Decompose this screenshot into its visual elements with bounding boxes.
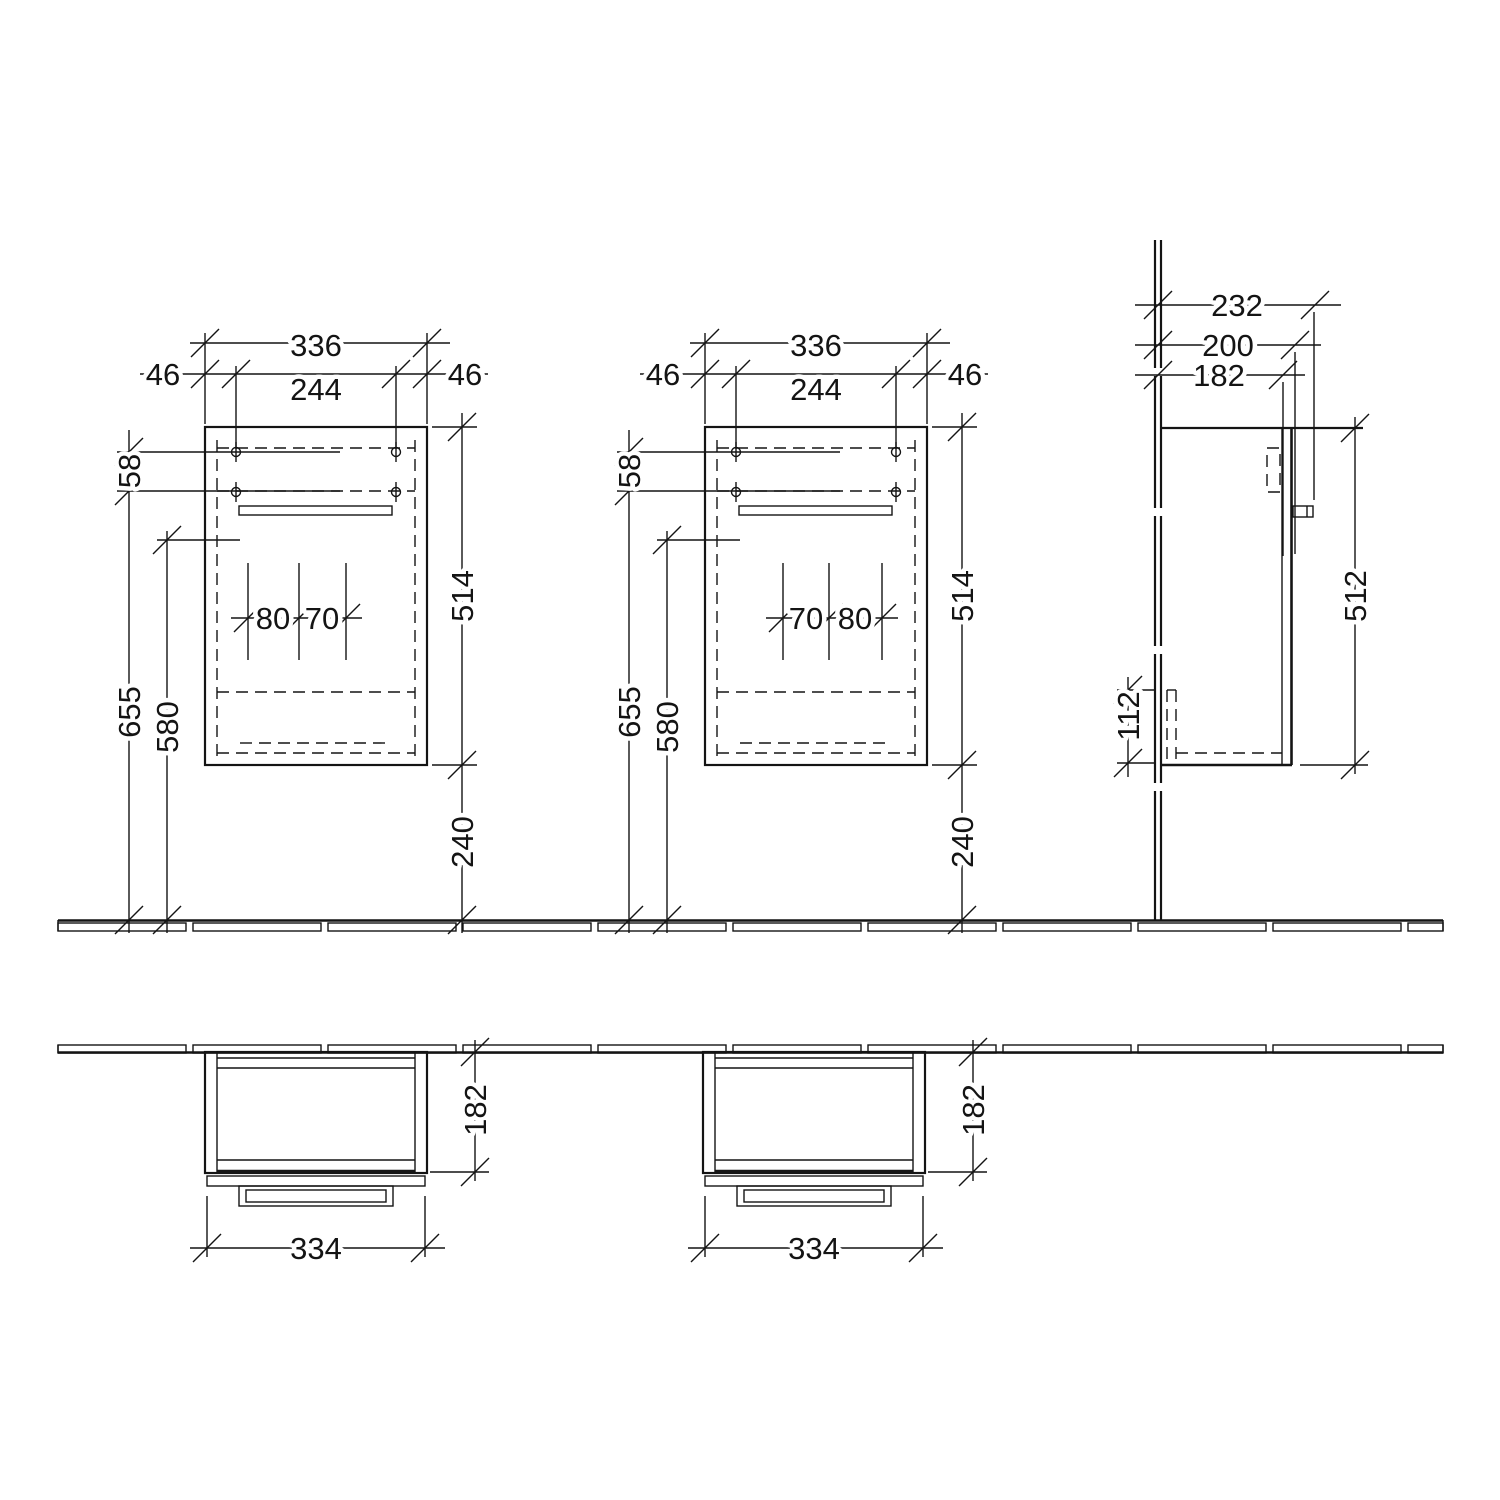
dimension-label: 244 [290, 372, 342, 407]
technical-drawing: 3364624446586555805142408070336462444658… [0, 0, 1500, 1500]
handle-plan [737, 1186, 891, 1206]
dimension-label: 46 [146, 357, 180, 392]
cabinet-outline [705, 427, 927, 765]
floor-line-hatch [463, 923, 591, 931]
floor-line-hatch [328, 923, 456, 931]
door-handle [239, 506, 392, 515]
floor-line-hatch [868, 923, 996, 931]
dimension-label: 240 [945, 816, 980, 868]
dimension-label: 240 [445, 816, 480, 868]
door-plan [207, 1176, 425, 1186]
dimension-label: 70 [789, 601, 823, 636]
dimension-label: 182 [458, 1084, 493, 1136]
dimension-label: 336 [290, 328, 342, 363]
hidden-fitting [1267, 448, 1280, 492]
dimension-label: 46 [948, 357, 982, 392]
floor-line-hatch [1003, 923, 1131, 931]
dimension-label: 182 [1193, 358, 1245, 393]
door-handle [739, 506, 892, 515]
floor-line-hatch [733, 923, 861, 931]
door-plan [705, 1176, 923, 1186]
dimension-label: 655 [612, 686, 647, 738]
dimension-label: 232 [1211, 288, 1263, 323]
floor-line-hatch [193, 923, 321, 931]
dimension-label: 58 [612, 454, 647, 488]
dimension-label: 70 [305, 601, 339, 636]
dimension-label: 514 [945, 570, 980, 622]
handle-side [1293, 506, 1313, 517]
dimension-label: 514 [445, 570, 480, 622]
dimension-label: 182 [956, 1084, 991, 1136]
dimension-label: 336 [790, 328, 842, 363]
floor-line-hatch [1138, 923, 1266, 931]
dimension-label: 58 [112, 454, 147, 488]
drawing-canvas: 3364624446586555805142408070336462444658… [0, 0, 1500, 1500]
floor-line-hatch [1408, 923, 1443, 931]
dimension-label: 580 [650, 701, 685, 753]
dimension-label: 80 [838, 601, 872, 636]
cabinet-plan-outline [205, 1052, 427, 1173]
cabinet-plan-outline [703, 1052, 925, 1173]
dimension-label: 46 [448, 357, 482, 392]
dimension-label: 655 [112, 686, 147, 738]
handle-plan [239, 1186, 393, 1206]
dimension-label: 112 [1111, 691, 1146, 740]
handle-plan-inner [246, 1190, 386, 1202]
floor-line-hatch [1273, 923, 1401, 931]
dimension-label: 580 [150, 701, 185, 753]
dimension-label: 334 [290, 1231, 342, 1266]
dimension-label: 46 [646, 357, 680, 392]
dimension-label: 334 [788, 1231, 840, 1266]
dimension-label: 512 [1338, 570, 1373, 622]
dimension-label: 80 [256, 601, 290, 636]
cabinet-outline [205, 427, 427, 765]
dimension-label: 244 [790, 372, 842, 407]
handle-plan-inner [744, 1190, 884, 1202]
